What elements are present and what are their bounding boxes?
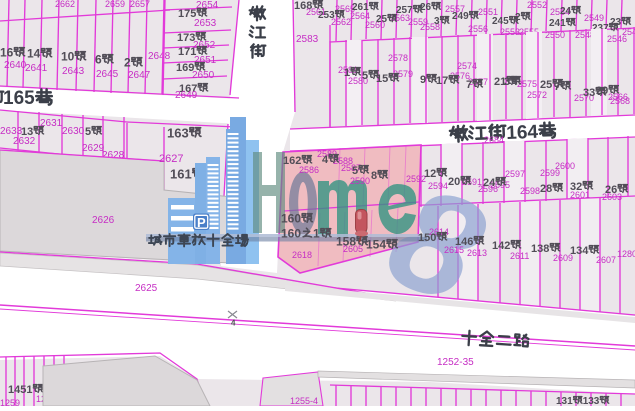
svg-text:2618: 2618: [292, 250, 312, 260]
svg-text:2550: 2550: [545, 30, 565, 40]
svg-text:163: 163: [167, 125, 189, 140]
svg-text:2586: 2586: [299, 165, 319, 175]
svg-text:2591: 2591: [462, 177, 482, 187]
svg-text:7: 7: [466, 79, 472, 91]
svg-text:162: 162: [283, 155, 301, 167]
svg-text:20: 20: [448, 176, 460, 188]
svg-text:8: 8: [371, 170, 377, 182]
svg-text:2649: 2649: [175, 90, 198, 101]
svg-text:P: P: [197, 215, 206, 230]
svg-text:2583: 2583: [296, 34, 319, 45]
svg-text:2645: 2645: [96, 69, 119, 80]
svg-text:2552: 2552: [527, 0, 547, 10]
svg-text:26: 26: [420, 2, 432, 13]
svg-text:249: 249: [452, 11, 469, 22]
svg-text:2657: 2657: [130, 0, 150, 9]
svg-text:150: 150: [418, 232, 436, 244]
svg-text:2631: 2631: [40, 118, 63, 129]
svg-text:134: 134: [570, 245, 589, 257]
svg-text:4: 4: [231, 318, 236, 327]
svg-text:5: 5: [362, 70, 368, 82]
svg-text:2632: 2632: [13, 136, 36, 147]
svg-text:142: 142: [492, 240, 510, 252]
svg-text:25: 25: [376, 14, 388, 25]
svg-text:2653: 2653: [194, 18, 217, 29]
svg-text:253: 253: [318, 10, 335, 21]
svg-text:2626: 2626: [92, 215, 115, 226]
svg-text:5: 5: [352, 165, 358, 177]
svg-text:2598: 2598: [520, 186, 540, 196]
svg-text:2647: 2647: [128, 70, 151, 81]
svg-text:2650: 2650: [192, 70, 215, 81]
svg-text:14: 14: [27, 47, 41, 61]
svg-text:17: 17: [436, 75, 448, 87]
svg-text:154: 154: [366, 238, 386, 252]
svg-text:2559: 2559: [408, 17, 428, 27]
svg-text:26: 26: [605, 184, 617, 196]
svg-text:12: 12: [424, 168, 436, 180]
svg-text:2659: 2659: [105, 0, 125, 9]
svg-text:2648: 2648: [148, 51, 171, 62]
svg-text:164: 164: [506, 122, 539, 144]
svg-text:16: 16: [0, 46, 14, 60]
svg-text:2594: 2594: [428, 181, 448, 191]
svg-text:1259: 1259: [0, 398, 20, 406]
svg-text:2654: 2654: [196, 0, 219, 11]
svg-text:2578: 2578: [388, 53, 408, 63]
svg-text:1: 1: [313, 227, 320, 241]
svg-text:2566: 2566: [608, 92, 628, 102]
svg-text:2574: 2574: [457, 61, 477, 71]
svg-text:2625: 2625: [135, 283, 158, 294]
svg-text:2: 2: [515, 12, 521, 23]
svg-text:15: 15: [376, 73, 388, 85]
svg-text:2641: 2641: [25, 63, 48, 74]
svg-text:138: 138: [531, 243, 549, 255]
svg-text:2643: 2643: [62, 66, 85, 77]
svg-text:160: 160: [281, 227, 301, 241]
svg-text:1280: 1280: [617, 249, 635, 259]
svg-text:165: 165: [3, 88, 35, 109]
svg-text:241: 241: [549, 18, 566, 29]
svg-text:2684: 2684: [484, 135, 504, 145]
svg-text:2640: 2640: [4, 60, 27, 71]
svg-text:3: 3: [434, 16, 440, 27]
svg-text:146: 146: [455, 236, 473, 248]
svg-text:158: 158: [336, 235, 356, 249]
svg-text:25: 25: [540, 79, 552, 91]
svg-text:9: 9: [420, 74, 426, 86]
svg-text:24: 24: [560, 6, 572, 17]
svg-text:2544: 2544: [622, 27, 635, 37]
svg-text:2553: 2553: [500, 27, 520, 37]
svg-text:257: 257: [396, 5, 413, 16]
svg-text:160: 160: [281, 212, 301, 226]
svg-text:2630: 2630: [62, 126, 85, 137]
svg-text:1252-35: 1252-35: [437, 357, 474, 368]
svg-text:131: 131: [556, 396, 573, 406]
svg-text:261: 261: [352, 2, 369, 13]
svg-text:2613: 2613: [467, 248, 487, 258]
svg-text:4: 4: [322, 154, 329, 166]
svg-text:1255-4: 1255-4: [290, 396, 318, 406]
svg-text:2590: 2590: [350, 176, 370, 186]
svg-text:1451: 1451: [8, 384, 32, 396]
svg-text:32: 32: [570, 181, 582, 193]
svg-text:24: 24: [483, 177, 496, 189]
svg-text:245: 245: [492, 16, 509, 27]
svg-text:2611: 2611: [510, 251, 529, 261]
svg-text:33: 33: [583, 87, 595, 99]
svg-text:21: 21: [494, 76, 506, 88]
svg-text:2627: 2627: [159, 153, 183, 165]
svg-text:2597: 2597: [505, 169, 525, 179]
svg-text:2572: 2572: [527, 90, 547, 100]
svg-text:28: 28: [540, 183, 552, 195]
svg-text:161: 161: [170, 166, 192, 181]
svg-text:1: 1: [344, 67, 350, 79]
svg-text:2599: 2599: [540, 168, 560, 178]
svg-text:6: 6: [95, 53, 102, 67]
svg-text:2: 2: [124, 56, 131, 70]
svg-text:2556: 2556: [468, 24, 488, 34]
svg-text:10: 10: [61, 50, 75, 64]
svg-text:5: 5: [85, 126, 91, 138]
svg-text:23: 23: [610, 17, 622, 28]
svg-text:133: 133: [583, 396, 600, 406]
svg-text:2607: 2607: [596, 255, 616, 265]
svg-text:2662: 2662: [55, 0, 75, 9]
svg-text:2549: 2549: [584, 13, 604, 23]
